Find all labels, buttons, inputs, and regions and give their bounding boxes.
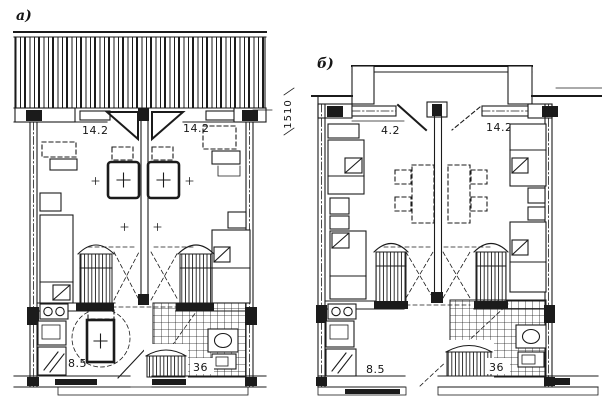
shelf (50, 159, 77, 170)
room-area-label: 14.2 (183, 122, 210, 135)
dimension-annotation: 1510 (283, 88, 294, 135)
wall-pier (327, 106, 343, 117)
bath-sink (518, 352, 544, 367)
room-left-b (328, 124, 366, 299)
wall-pier (27, 307, 39, 325)
window-sill (80, 111, 110, 120)
table (412, 165, 434, 223)
kitchen-a: 8.5 (38, 304, 148, 378)
bed (40, 215, 73, 303)
wardrobe (144, 344, 188, 378)
partition-a (138, 108, 149, 305)
bathroom-a: 36 (144, 303, 246, 378)
door-leaf-dashed (452, 107, 480, 130)
toilet (516, 325, 546, 348)
nightstand (330, 198, 349, 214)
shelf (212, 151, 240, 164)
entry-slab (438, 387, 598, 395)
shelf (528, 207, 545, 220)
desk (42, 142, 76, 157)
nightstand (228, 212, 246, 228)
kitchen-b: 8.5 (326, 304, 385, 376)
chair (395, 170, 411, 184)
bed (510, 222, 546, 292)
threshold (55, 379, 97, 385)
threshold (548, 378, 570, 385)
wall-pier (316, 305, 327, 323)
chair (112, 147, 133, 160)
window-sill (206, 111, 236, 120)
bed (212, 230, 250, 303)
door-swing-left (107, 112, 138, 139)
threshold (345, 389, 400, 394)
partition-b (431, 104, 443, 303)
chair (471, 197, 487, 211)
threshold (152, 379, 186, 385)
bed (330, 231, 366, 299)
entry-slab (58, 387, 248, 395)
bottom-wall-a (14, 376, 266, 395)
wardrobe (178, 245, 214, 304)
dimension-text: 1510 (283, 99, 294, 128)
wardrobe (374, 244, 408, 303)
room-area-label: 14.2 (486, 121, 513, 134)
room-area-label: 4.2 (381, 124, 400, 137)
floor-plan-figure: а) (0, 0, 602, 402)
floor-plan-drawing: а) (0, 0, 602, 402)
room-right-b (510, 124, 546, 292)
plan-a: а) (14, 8, 272, 395)
bath-sink (212, 354, 236, 369)
cabinet (38, 347, 66, 375)
bath-area-label: 36 (489, 361, 504, 374)
balcony-a (14, 32, 266, 108)
chair (152, 147, 173, 160)
door-swing-right (152, 112, 183, 139)
bathroom-b: 36 (444, 300, 546, 378)
nightstand (40, 193, 61, 211)
bath-area-label: 36 (193, 361, 208, 374)
wall-pier (542, 106, 558, 117)
room-area-label: 14.2 (82, 124, 109, 137)
wardrobe (78, 245, 114, 304)
kitchen-area-label: 8.5 (68, 357, 87, 370)
wall-pier (245, 307, 257, 325)
dimension-tick (284, 88, 294, 95)
table (448, 165, 470, 223)
nightstand (528, 188, 545, 203)
kitchen-area-label: 8.5 (366, 363, 385, 376)
shelf (330, 216, 349, 229)
balcony-deck-hatch (15, 37, 265, 108)
bed (510, 124, 546, 186)
plan-b: б) (312, 56, 602, 395)
wardrobe (474, 244, 508, 303)
tables-a (92, 147, 193, 231)
door-leaf (398, 105, 426, 130)
chair (471, 170, 487, 184)
panel-a-label: а) (16, 8, 32, 24)
loggia-b (312, 66, 602, 104)
entry-door-leaf (118, 346, 148, 378)
room-left-a (40, 142, 77, 303)
bed (328, 140, 364, 194)
toilet (208, 329, 238, 352)
cabinet (326, 349, 356, 376)
bottom-wall-b (316, 376, 598, 395)
shelf (328, 124, 359, 138)
panel-b-label: б) (317, 56, 334, 72)
wall-pier (242, 110, 258, 121)
wall-pier (26, 110, 42, 121)
chair (395, 197, 411, 211)
